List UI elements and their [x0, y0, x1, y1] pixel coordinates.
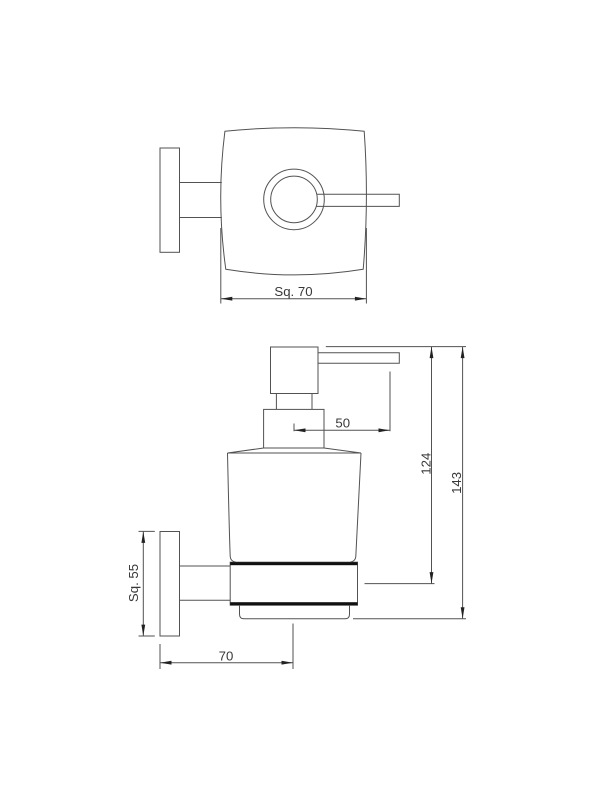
svg-text:143: 143 — [449, 472, 464, 494]
svg-text:124: 124 — [418, 453, 433, 475]
svg-text:70: 70 — [219, 649, 234, 664]
svg-text:Sq. 70: Sq. 70 — [274, 284, 312, 299]
svg-text:Sq. 55: Sq. 55 — [126, 564, 141, 602]
svg-text:50: 50 — [335, 415, 350, 430]
